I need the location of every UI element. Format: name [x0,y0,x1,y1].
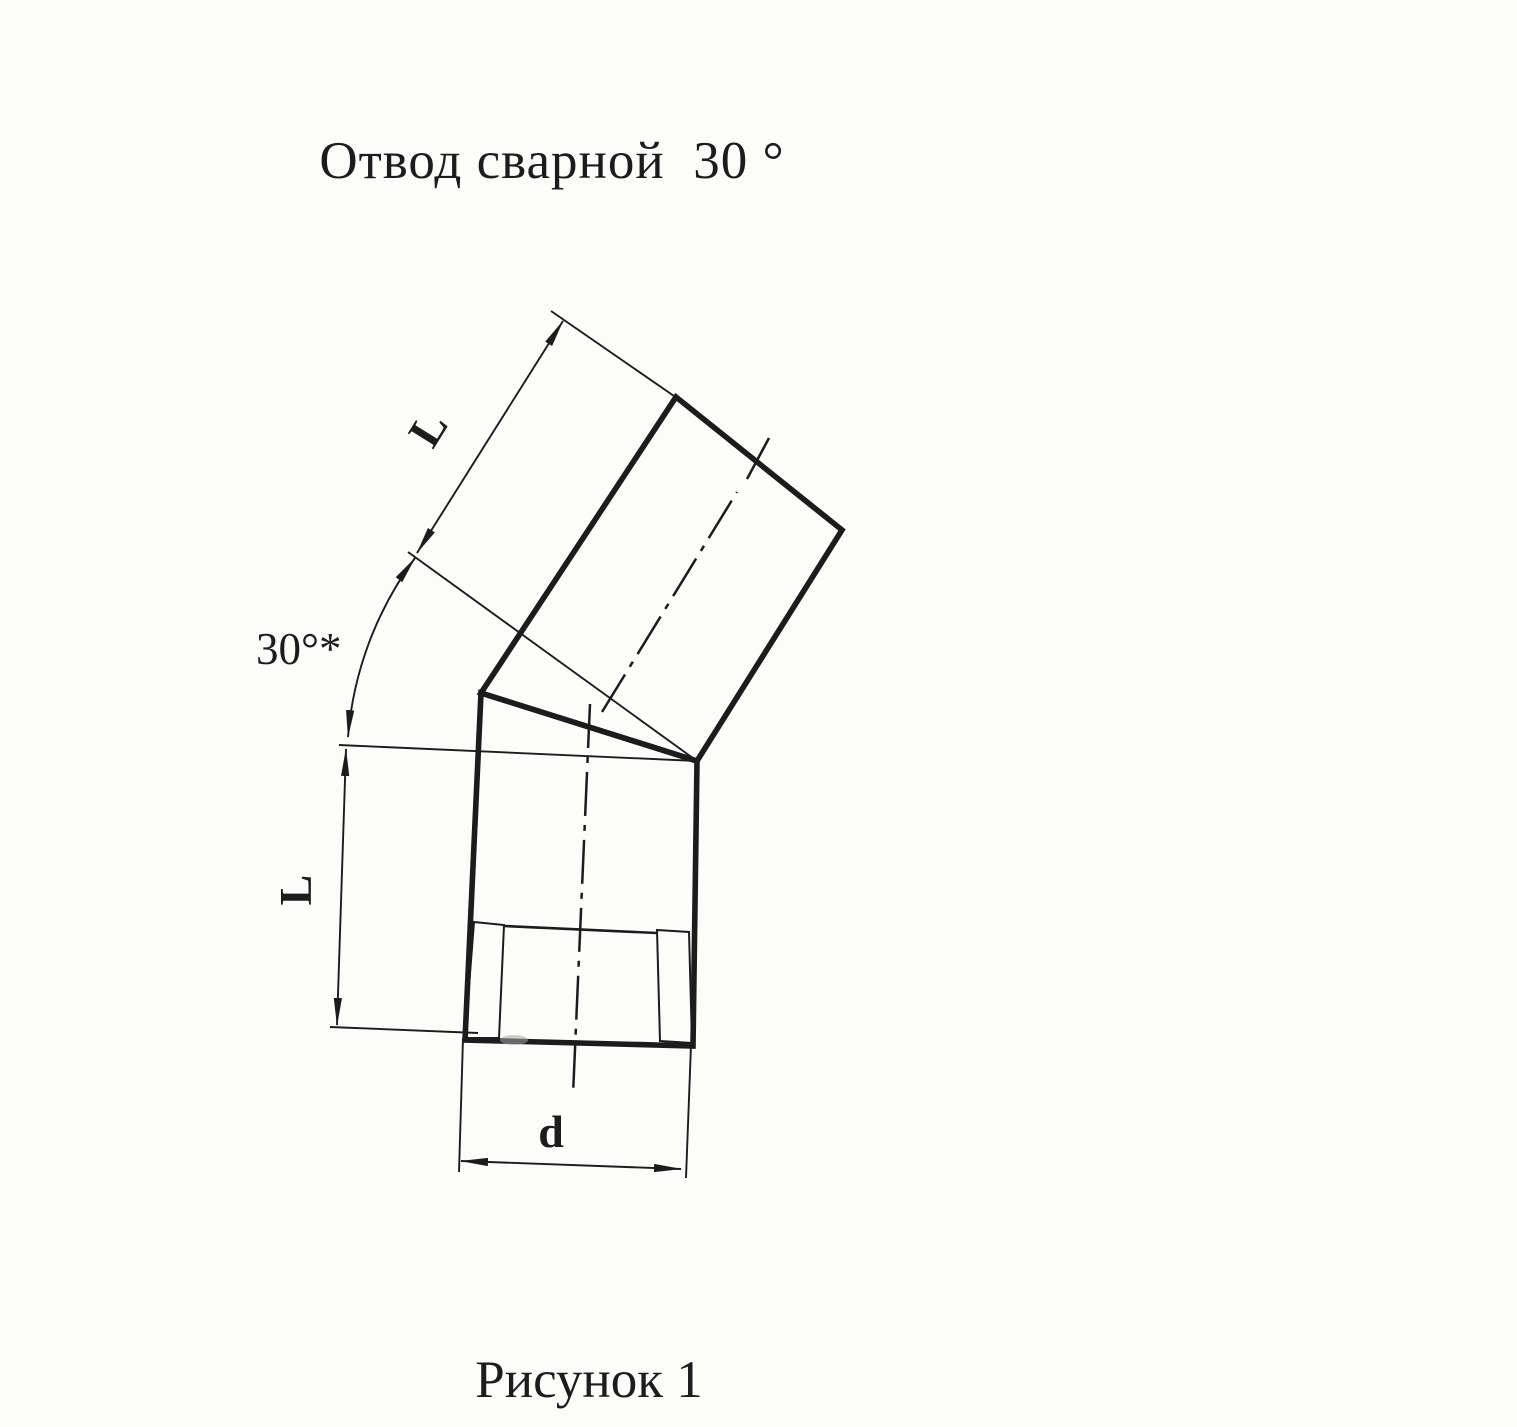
scanned-drawing-page: Отвод сварной 30 ° Рисунок 1 L [0,0,1517,1427]
extension-line-top-face [551,311,674,396]
drawing-title: Отвод сварной 30 ° [319,132,784,190]
angle-arc [348,558,415,737]
scan-smudge [500,1035,528,1045]
diameter-label: d [538,1106,564,1157]
dimension-line-lower-length [337,749,346,1025]
angle-label: 30°* [256,624,342,674]
elbow-technical-drawing: Отвод сварной 30 ° Рисунок 1 L [0,0,1517,1427]
figure-caption: Рисунок 1 [475,1351,703,1409]
lower-pipe-segment [465,693,697,1046]
dim-upper-length: L [398,311,697,761]
dimension-line-diameter [461,1161,681,1169]
upper-axis-centerline [602,492,737,712]
lower-length-label: L [270,875,321,906]
extension-line-bottom [330,1027,478,1033]
lower-axis-centerline [573,704,590,1095]
dim-lower-length: L [270,749,478,1033]
wall-section-hatch-right [657,930,692,1043]
centerlines [573,438,769,1095]
pipe-elbow-outline [465,397,842,1046]
extension-line-left [459,1038,463,1172]
extension-line-horizontal [339,745,697,761]
upper-pipe-segment [481,397,842,761]
upper-length-label: L [398,402,458,455]
extension-line-right [686,1045,691,1178]
